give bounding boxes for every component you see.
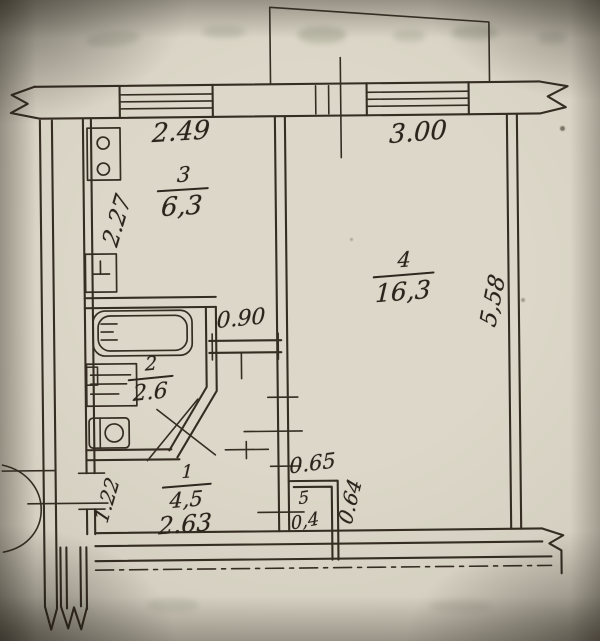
room-label-bathroom: 2 2.6 <box>127 353 174 407</box>
entry-arc <box>2 465 41 552</box>
corridor-wall-bottom <box>96 556 552 570</box>
wall-break-left <box>11 87 40 119</box>
wall-step-right <box>542 528 563 573</box>
balcony-door-marks <box>315 58 341 158</box>
room-number: 4 <box>397 249 411 271</box>
axis-line <box>96 565 552 570</box>
wall-break-bottom <box>45 607 57 630</box>
floor-plan-drawing: 3 6,3 4 16,3 2 2.6 1 4,5 5 0,4 2.49 3.00… <box>0 0 600 641</box>
dim-living-window: 3.00 <box>389 117 448 148</box>
left-wall-lower <box>60 547 87 629</box>
balcony-outline <box>270 5 490 84</box>
hall-door-axis-mark <box>225 441 268 458</box>
dim-kitchen-window: 2.49 <box>151 117 210 147</box>
door-jamb <box>244 431 302 432</box>
window-kitchen <box>120 85 213 118</box>
dim-kitchen-door: 0.90 <box>216 306 265 333</box>
room-area: 2.6 <box>133 380 168 406</box>
room-label-kitchen: 3 6,3 <box>155 163 210 222</box>
scanned-floor-plan-photo: 3 6,3 4 16,3 2 2.6 1 4,5 5 0,4 2.49 3.00… <box>0 0 600 641</box>
right-wall <box>507 115 521 529</box>
bathtub-symbol <box>93 310 192 356</box>
room-area: 6,3 <box>160 192 203 221</box>
kitchen-door-marks <box>209 333 281 379</box>
room-label-living: 4 16,3 <box>372 247 436 306</box>
room-number: 2 <box>145 354 158 374</box>
kitchen-sink-symbol <box>85 254 116 292</box>
room-label-hall: 1 4,5 <box>161 462 213 513</box>
room-area: 16,3 <box>375 277 432 307</box>
dim-hall-width: 2.63 <box>158 510 212 538</box>
wall-break-right <box>540 81 568 113</box>
room-number-closet: 5 <box>298 490 309 509</box>
exterior-wall-top <box>11 81 568 119</box>
stairwell-wall-left <box>40 121 57 630</box>
wall-break-bottom <box>61 606 87 629</box>
room-number: 1 <box>181 463 193 482</box>
floor-plan-linework <box>0 0 600 641</box>
room-number: 3 <box>176 164 191 186</box>
room-area-closet: 0,4 <box>290 510 319 533</box>
window-living <box>367 82 469 115</box>
apartment-left-wall <box>75 119 105 534</box>
